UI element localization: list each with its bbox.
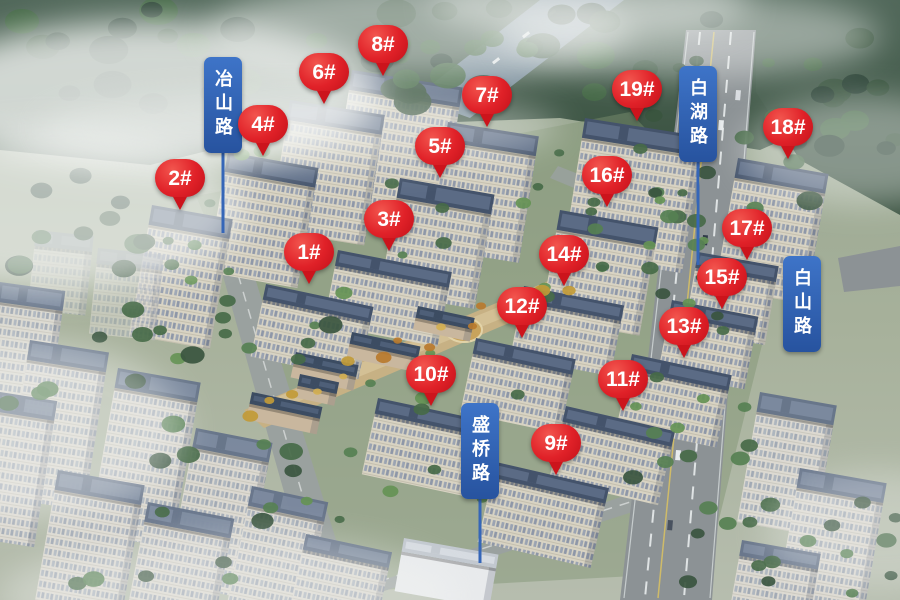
- marker-pointer-icon: [556, 271, 572, 286]
- marker-label: 8#: [358, 25, 408, 63]
- marker-label: 3#: [364, 200, 414, 238]
- marker-label: 11#: [598, 360, 648, 398]
- building-marker-15[interactable]: 15#: [697, 258, 747, 296]
- marker-label: 12#: [497, 287, 547, 325]
- building-marker-11[interactable]: 11#: [598, 360, 648, 398]
- building-marker-7[interactable]: 7#: [462, 76, 512, 114]
- building-marker-1[interactable]: 1#: [284, 233, 334, 271]
- marker-label: 1#: [284, 233, 334, 271]
- building-marker-13[interactable]: 13#: [659, 307, 709, 345]
- road-sign-pole: [697, 160, 700, 265]
- marker-pointer-icon: [432, 163, 448, 178]
- marker-label: 7#: [462, 76, 512, 114]
- marker-label: 17#: [722, 209, 772, 247]
- road-sign-pole: [479, 497, 482, 563]
- building-marker-16[interactable]: 16#: [582, 156, 632, 194]
- road-sign-白湖路: 白湖路: [679, 66, 717, 162]
- building-marker-12[interactable]: 12#: [497, 287, 547, 325]
- marker-pointer-icon: [381, 236, 397, 251]
- marker-label: 6#: [299, 53, 349, 91]
- marker-label: 18#: [763, 108, 813, 146]
- marker-pointer-icon: [548, 460, 564, 475]
- marker-pointer-icon: [375, 61, 391, 76]
- marker-label: 5#: [415, 127, 465, 165]
- building-marker-8[interactable]: 8#: [358, 25, 408, 63]
- marker-label: 15#: [697, 258, 747, 296]
- marker-label: 14#: [539, 235, 589, 273]
- marker-pointer-icon: [599, 192, 615, 207]
- aerial-rendering: 冶山路白湖路白山路盛桥路1#2#3#4#5#6#7#8#9#10#11#12#1…: [0, 0, 900, 600]
- building-marker-3[interactable]: 3#: [364, 200, 414, 238]
- marker-label: 13#: [659, 307, 709, 345]
- marker-pointer-icon: [676, 343, 692, 358]
- building-marker-2[interactable]: 2#: [155, 159, 205, 197]
- marker-pointer-icon: [629, 106, 645, 121]
- building-marker-18[interactable]: 18#: [763, 108, 813, 146]
- building-marker-5[interactable]: 5#: [415, 127, 465, 165]
- road-sign-白山路: 白山路: [783, 256, 821, 352]
- marker-label: 2#: [155, 159, 205, 197]
- marker-pointer-icon: [514, 323, 530, 338]
- building-marker-14[interactable]: 14#: [539, 235, 589, 273]
- marker-pointer-icon: [255, 141, 271, 156]
- marker-label: 19#: [612, 70, 662, 108]
- marker-label: 10#: [406, 355, 456, 393]
- marker-pointer-icon: [301, 269, 317, 284]
- marker-label: 9#: [531, 424, 581, 462]
- marker-pointer-icon: [479, 112, 495, 127]
- marker-pointer-icon: [172, 195, 188, 210]
- marker-pointer-icon: [615, 396, 631, 411]
- building-marker-19[interactable]: 19#: [612, 70, 662, 108]
- marker-pointer-icon: [714, 294, 730, 309]
- marker-pointer-icon: [780, 144, 796, 159]
- road-sign-冶山路: 冶山路: [204, 57, 242, 153]
- building-marker-10[interactable]: 10#: [406, 355, 456, 393]
- marker-pointer-icon: [739, 245, 755, 260]
- road-sign-盛桥路: 盛桥路: [461, 403, 499, 499]
- building-marker-17[interactable]: 17#: [722, 209, 772, 247]
- marker-overlay: 冶山路白湖路白山路盛桥路1#2#3#4#5#6#7#8#9#10#11#12#1…: [0, 0, 900, 600]
- building-marker-6[interactable]: 6#: [299, 53, 349, 91]
- road-sign-pole: [222, 151, 225, 233]
- building-marker-4[interactable]: 4#: [238, 105, 288, 143]
- marker-label: 16#: [582, 156, 632, 194]
- building-marker-9[interactable]: 9#: [531, 424, 581, 462]
- marker-pointer-icon: [316, 89, 332, 104]
- marker-pointer-icon: [423, 391, 439, 406]
- marker-label: 4#: [238, 105, 288, 143]
